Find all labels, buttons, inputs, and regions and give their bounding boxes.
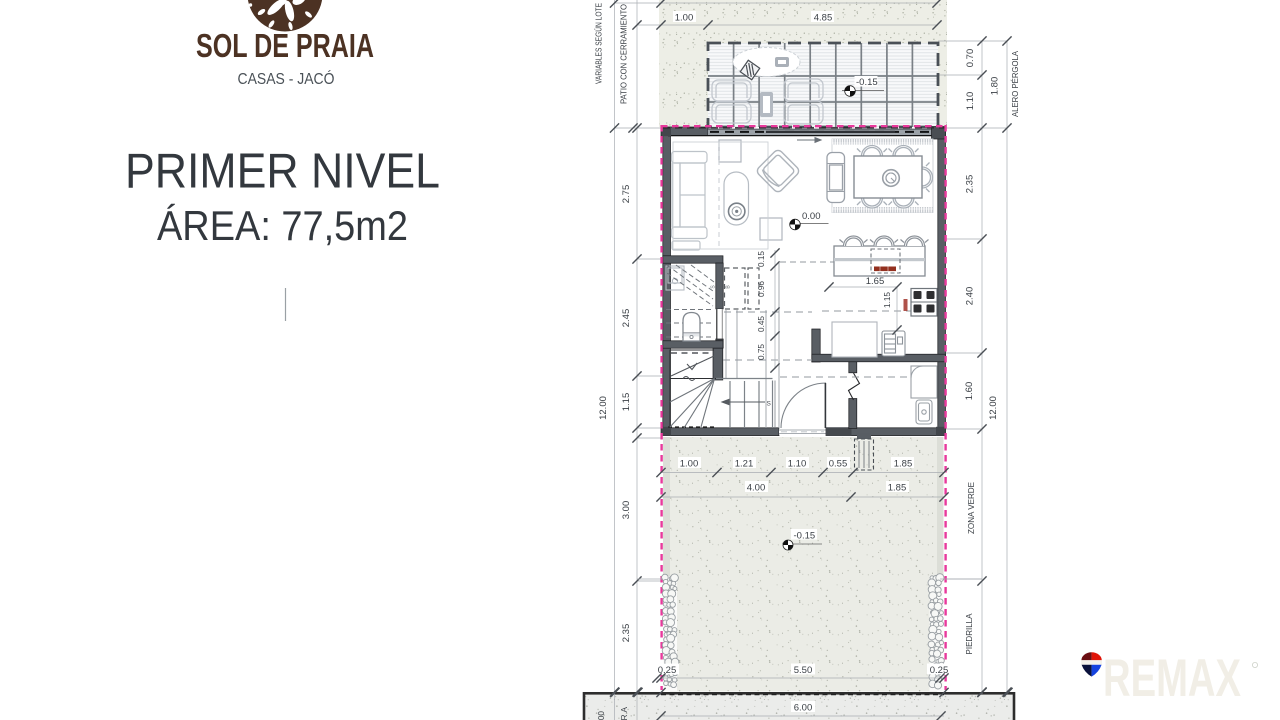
svg-text:1.00: 1.00 [675, 13, 694, 24]
svg-text:SOL DE PRAIA: SOL DE PRAIA [196, 28, 374, 65]
svg-text:12.00: 12.00 [598, 396, 609, 420]
svg-text:0.70: 0.70 [965, 49, 976, 68]
svg-text:2.40: 2.40 [965, 287, 976, 306]
svg-text:1.00: 1.00 [680, 459, 699, 470]
svg-text:2.45: 2.45 [621, 309, 632, 328]
svg-text:1.10: 1.10 [965, 92, 976, 111]
svg-text:CASAS - JACÓ: CASAS - JACÓ [238, 69, 335, 88]
svg-text:REMAX: REMAX [1103, 649, 1241, 708]
svg-text:1.60: 1.60 [964, 382, 975, 401]
svg-text:PIEDRILLA: PIEDRILLA [965, 613, 974, 655]
svg-text:0.96: 0.96 [757, 281, 766, 297]
svg-text:-0.15: -0.15 [856, 77, 878, 88]
svg-text:PATIO CON CERRAMIENTO: PATIO CON CERRAMIENTO [620, 4, 629, 104]
svg-text:1.15: 1.15 [883, 292, 892, 308]
svg-text:B: B [726, 285, 732, 289]
svg-text:5.50: 5.50 [794, 665, 813, 676]
svg-text:1.85: 1.85 [894, 459, 913, 470]
svg-text:0.15: 0.15 [757, 251, 766, 267]
svg-text:1.85: 1.85 [888, 483, 907, 494]
svg-text:2.35: 2.35 [965, 175, 976, 194]
svg-text:3.00: 3.00 [621, 501, 632, 520]
svg-text:0.25: 0.25 [930, 665, 949, 676]
svg-text:ALERO PÉRGOLA: ALERO PÉRGOLA [1010, 50, 1020, 117]
svg-text:1.80: 1.80 [990, 77, 1001, 96]
svg-text:0.45: 0.45 [757, 316, 766, 332]
svg-text:ÁREA: 77,5m2: ÁREA: 77,5m2 [157, 202, 408, 249]
svg-text:12.00: 12.00 [988, 396, 999, 420]
svg-text:PRIMER NIVEL: PRIMER NIVEL [125, 145, 440, 199]
svg-text:2.75: 2.75 [621, 185, 632, 204]
svg-text:VARIABLES SEGÚN LOTE: VARIABLES SEGÚN LOTE [594, 3, 604, 84]
svg-text:-0.15: -0.15 [794, 531, 816, 542]
svg-text:1.15: 1.15 [621, 393, 632, 412]
svg-text:2.35: 2.35 [621, 624, 632, 643]
svg-text:S: S [767, 401, 772, 408]
svg-text:1.21: 1.21 [735, 459, 754, 470]
svg-text:4.00: 4.00 [747, 483, 766, 494]
svg-text:1.10: 1.10 [788, 459, 807, 470]
svg-text:2.00: 2.00 [597, 711, 606, 720]
svg-text:0.75: 0.75 [757, 344, 766, 360]
svg-text:ACERA: ACERA [620, 706, 629, 720]
svg-text:4.85: 4.85 [814, 13, 833, 24]
svg-text:1.65: 1.65 [866, 276, 885, 287]
svg-text:0.00: 0.00 [802, 211, 821, 222]
svg-text:0.55: 0.55 [829, 459, 848, 470]
svg-text:ZONA VERDE: ZONA VERDE [967, 481, 976, 534]
svg-text:6.00: 6.00 [794, 703, 813, 714]
